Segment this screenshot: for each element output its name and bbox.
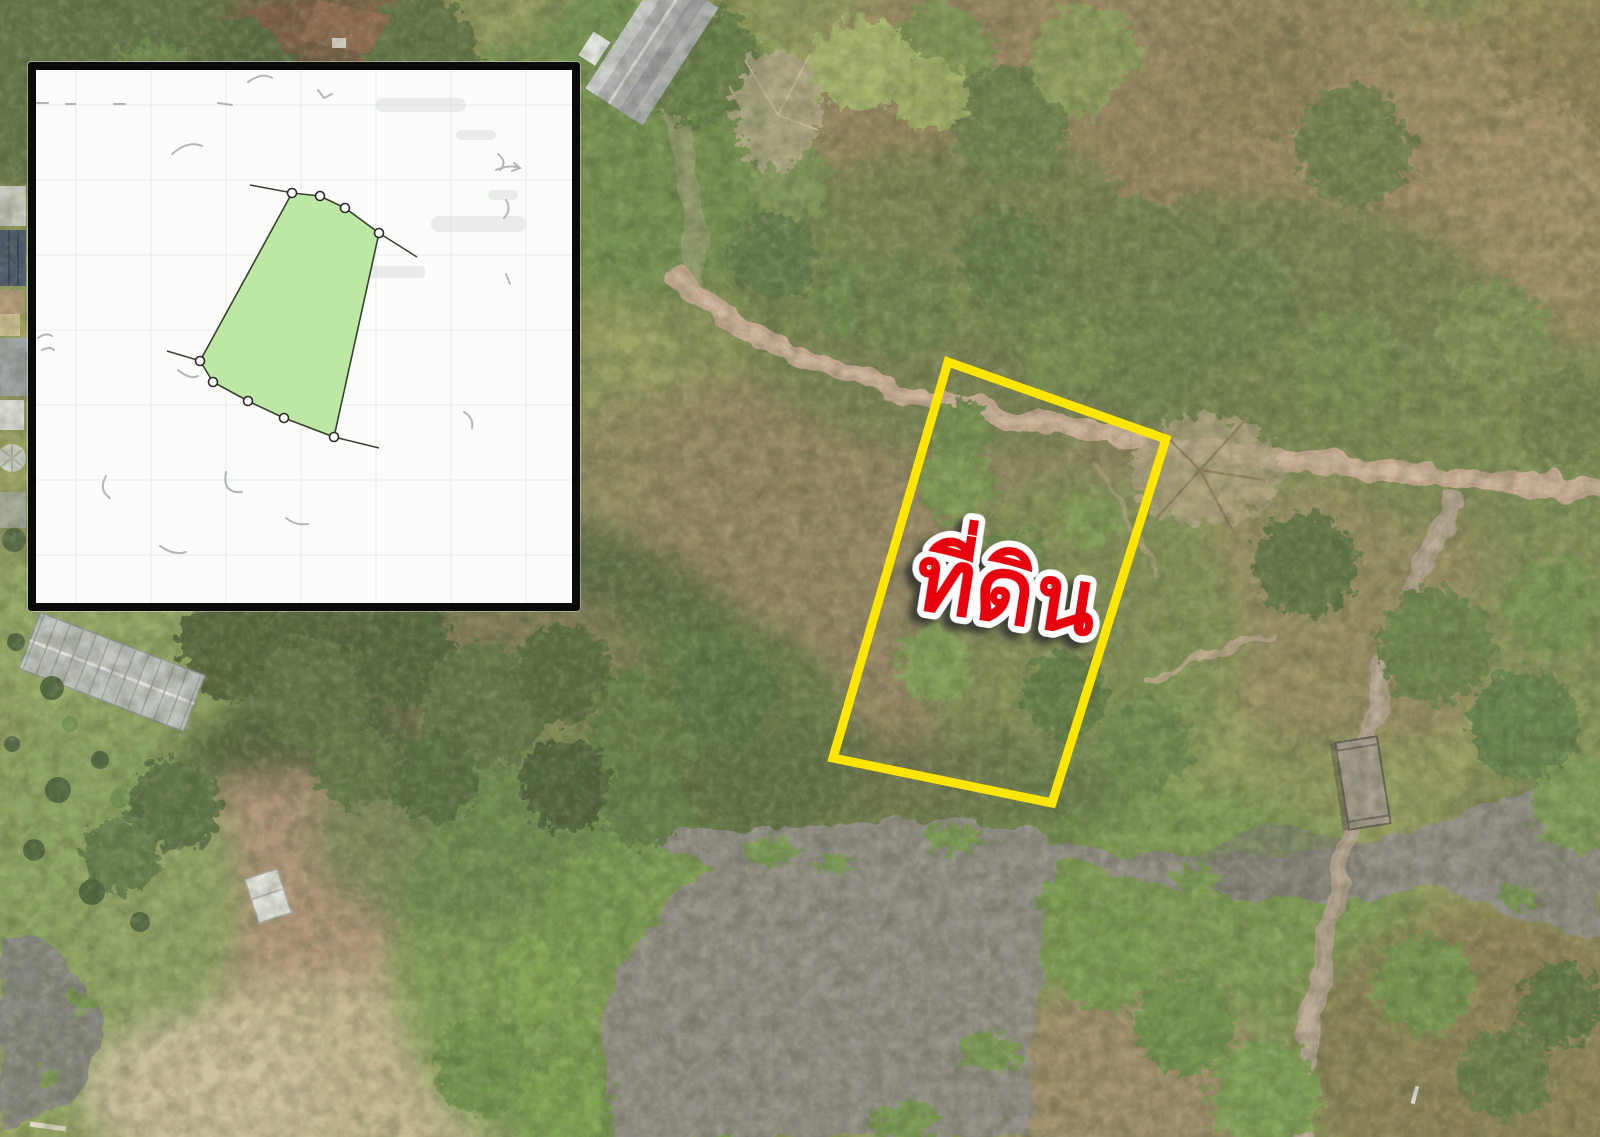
parcel-vertex-marker [209,378,218,387]
parcel-vertex-marker [288,189,297,198]
parcel-vertex-marker [196,357,205,366]
aerial-photo-canvas: ที่ดิน [0,0,1600,1137]
survey-map-drawing [36,70,572,603]
inset-survey-map [28,62,580,611]
parcel-vertex-marker [244,397,253,406]
ghost-writing-smudges [366,98,526,278]
extension-line [334,437,379,448]
parcel-vertex-marker [330,433,339,442]
parcel-vertex-marker [316,192,325,201]
parcel-polygon [200,193,379,437]
parcel-vertex-marker [375,229,384,238]
parcel-vertex-marker [280,414,289,423]
extension-line [379,233,417,257]
parcel-vertex-marker [341,204,350,213]
